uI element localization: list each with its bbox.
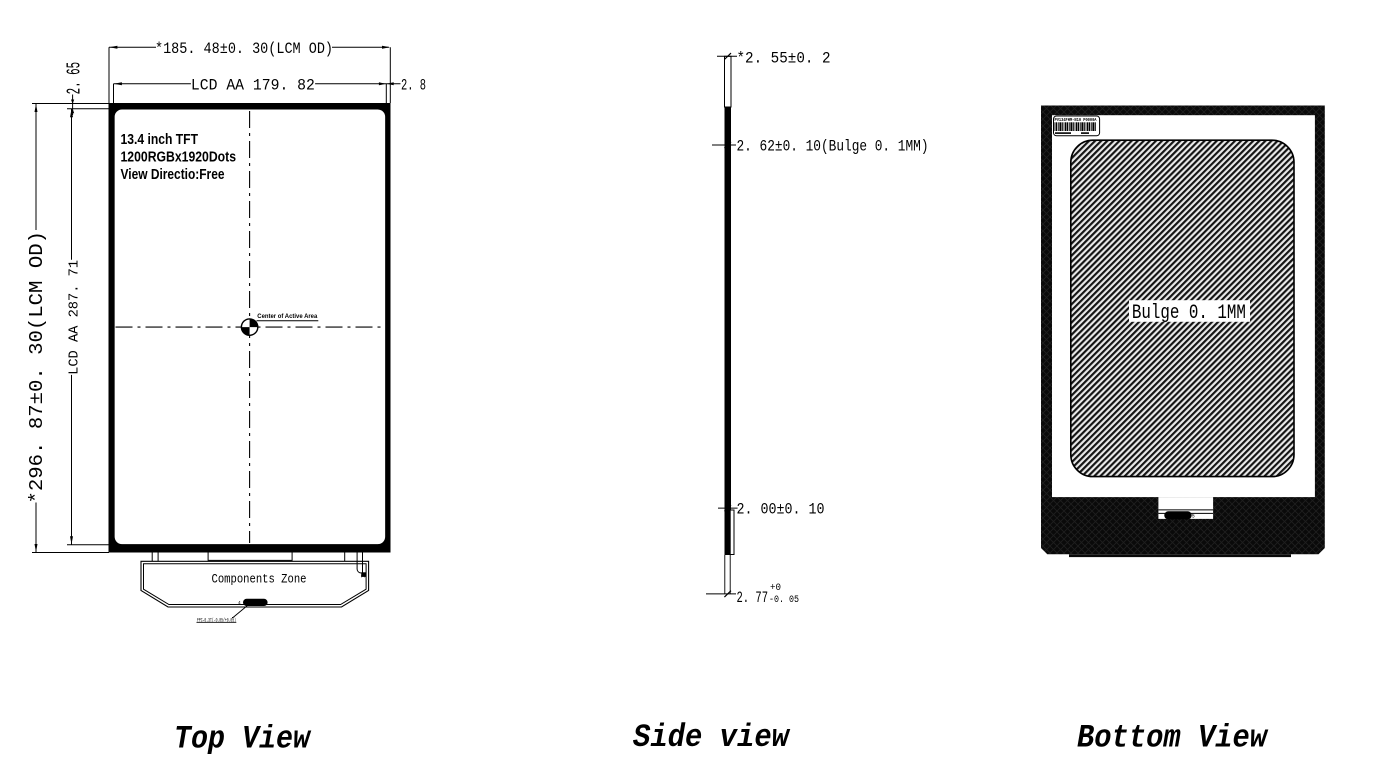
svg-text:Side view: Side view: [633, 719, 791, 756]
svg-text:Center of Active Area: Center of Active Area: [257, 313, 317, 320]
svg-text:1200RGBx1920Dots: 1200RGBx1920Dots: [121, 150, 237, 166]
svg-text:Components Zone: Components Zone: [212, 572, 307, 587]
svg-text:2. 65: 2. 65: [64, 62, 86, 95]
svg-text:2. 00±0. 10: 2. 00±0. 10: [737, 501, 825, 519]
svg-text:*296. 87±0. 30(LCM OD): *296. 87±0. 30(LCM OD): [26, 231, 48, 504]
svg-text:Bottom View: Bottom View: [1077, 720, 1269, 757]
svg-text:2. 62±0. 10(Bulge 0. 1MM): 2. 62±0. 10(Bulge 0. 1MM): [737, 138, 929, 156]
svg-text:4: 4: [238, 600, 241, 606]
svg-text:-0. 05: -0. 05: [769, 594, 799, 606]
svg-text:5: 5: [1192, 514, 1195, 520]
svg-text:+0: +0: [770, 582, 781, 594]
svg-text:*185. 48±0. 30(LCM OD): *185. 48±0. 30(LCM OD): [155, 40, 333, 58]
svg-text:LCD AA 287. 71: LCD AA 287. 71: [67, 260, 83, 375]
svg-text:Bulge 0. 1MM: Bulge 0. 1MM: [1132, 302, 1246, 325]
svg-text:Top View: Top View: [174, 721, 312, 758]
svg-text:2. 8: 2. 8: [401, 77, 426, 95]
svg-text:2. 77: 2. 77: [737, 589, 769, 607]
svg-text:View Directio:Free: View Directio:Free: [121, 167, 225, 183]
svg-text:LCD AA 179. 82: LCD AA 179. 82: [191, 76, 315, 94]
svg-text:13.4 inch TFT: 13.4 inch TFT: [121, 132, 199, 148]
svg-text:*2. 55±0. 2: *2. 55±0. 2: [737, 50, 831, 68]
